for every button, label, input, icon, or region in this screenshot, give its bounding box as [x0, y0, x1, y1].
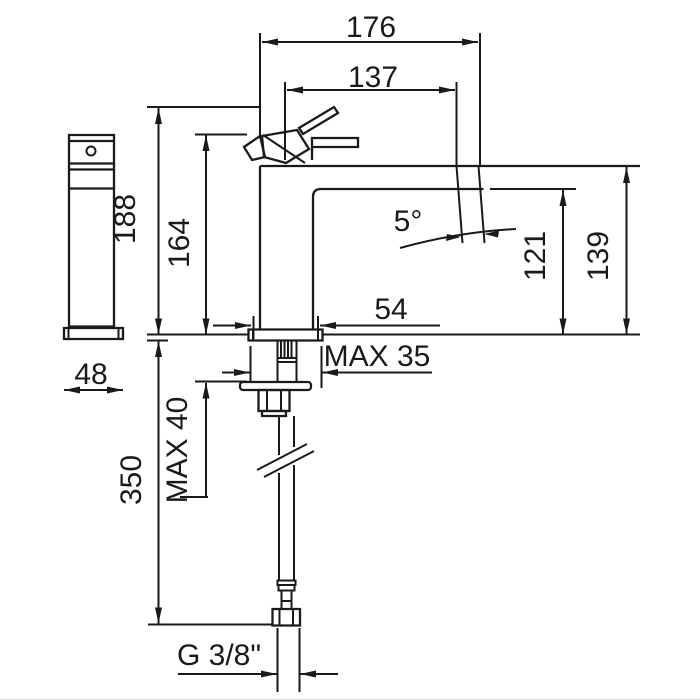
dim-label-thread: G 3/8" — [177, 639, 261, 672]
dim-label-137: 137 — [348, 61, 398, 94]
dim-label-188: 188 — [109, 194, 142, 244]
fixing-flange — [240, 382, 311, 390]
dim-label-54: 54 — [374, 293, 407, 326]
dim-label-350: 350 — [115, 455, 148, 505]
side-view-body — [249, 33, 641, 341]
pipe-break-symbol — [257, 444, 314, 477]
dim-label-121: 121 — [519, 231, 552, 281]
dim-label-max35: MAX 35 — [324, 340, 431, 373]
dim-label-176: 176 — [346, 11, 396, 44]
g38-hex-nut — [273, 609, 301, 626]
dim-label-max40: MAX 40 — [161, 397, 194, 504]
lever-arm — [299, 107, 338, 134]
dim-label-angle: 5° — [394, 205, 423, 238]
mounting-hardware — [240, 341, 314, 626]
handle-dot-front — [87, 147, 96, 156]
side-view-handle — [244, 107, 358, 163]
dim-label-139: 139 — [582, 231, 615, 281]
faucet-dimension-drawing: 176 137 188 164 121 139 5° 54 MAX 35 48 … — [0, 0, 700, 700]
technical-drawing-canvas: 176 137 188 164 121 139 5° 54 MAX 35 48 … — [0, 0, 700, 700]
fixing-nut — [259, 390, 290, 411]
dim-label-164: 164 — [163, 218, 196, 268]
dim-label-48: 48 — [74, 358, 107, 391]
